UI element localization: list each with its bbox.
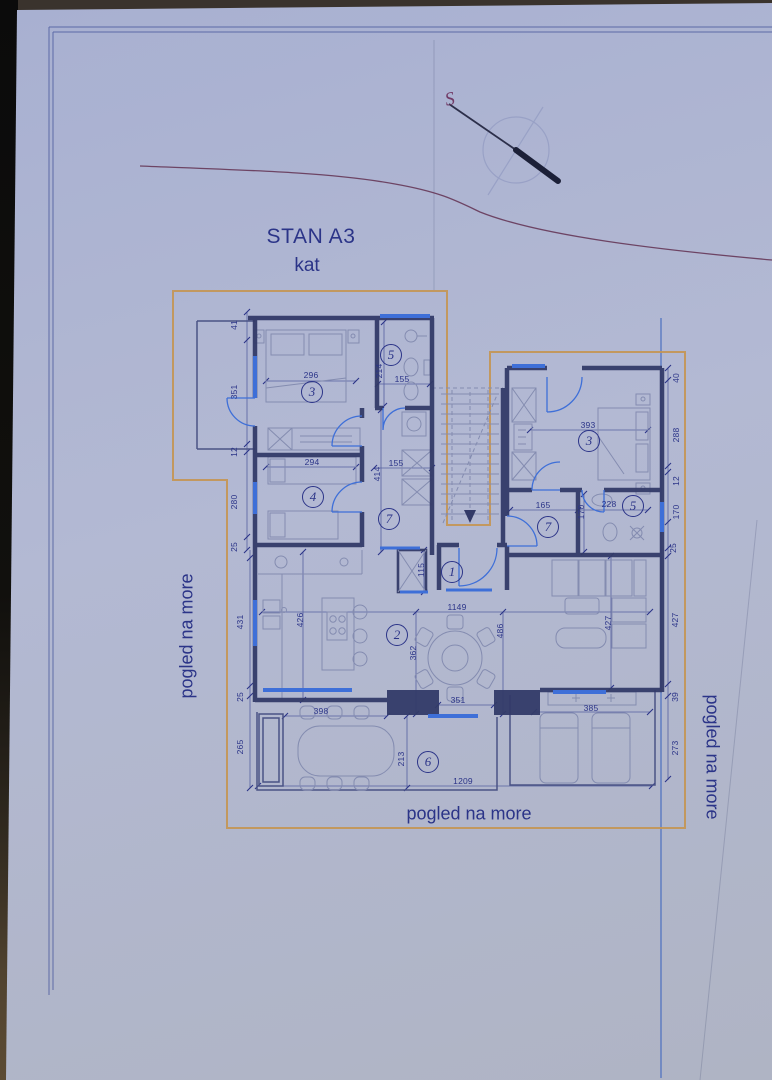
staircase <box>432 388 503 523</box>
terrain-contour-line <box>140 166 772 260</box>
floor-plan-svg <box>0 0 772 1080</box>
paper-sheet: STAN A3 kat S pogled na more pogled na m… <box>0 0 772 1080</box>
walls-layer <box>248 318 662 715</box>
photo-of-floor-plan: { "title": {"line1": "STAN A3", "line2":… <box>0 0 772 1080</box>
compass-icon <box>449 104 558 195</box>
windows-doors-layer <box>227 316 662 716</box>
